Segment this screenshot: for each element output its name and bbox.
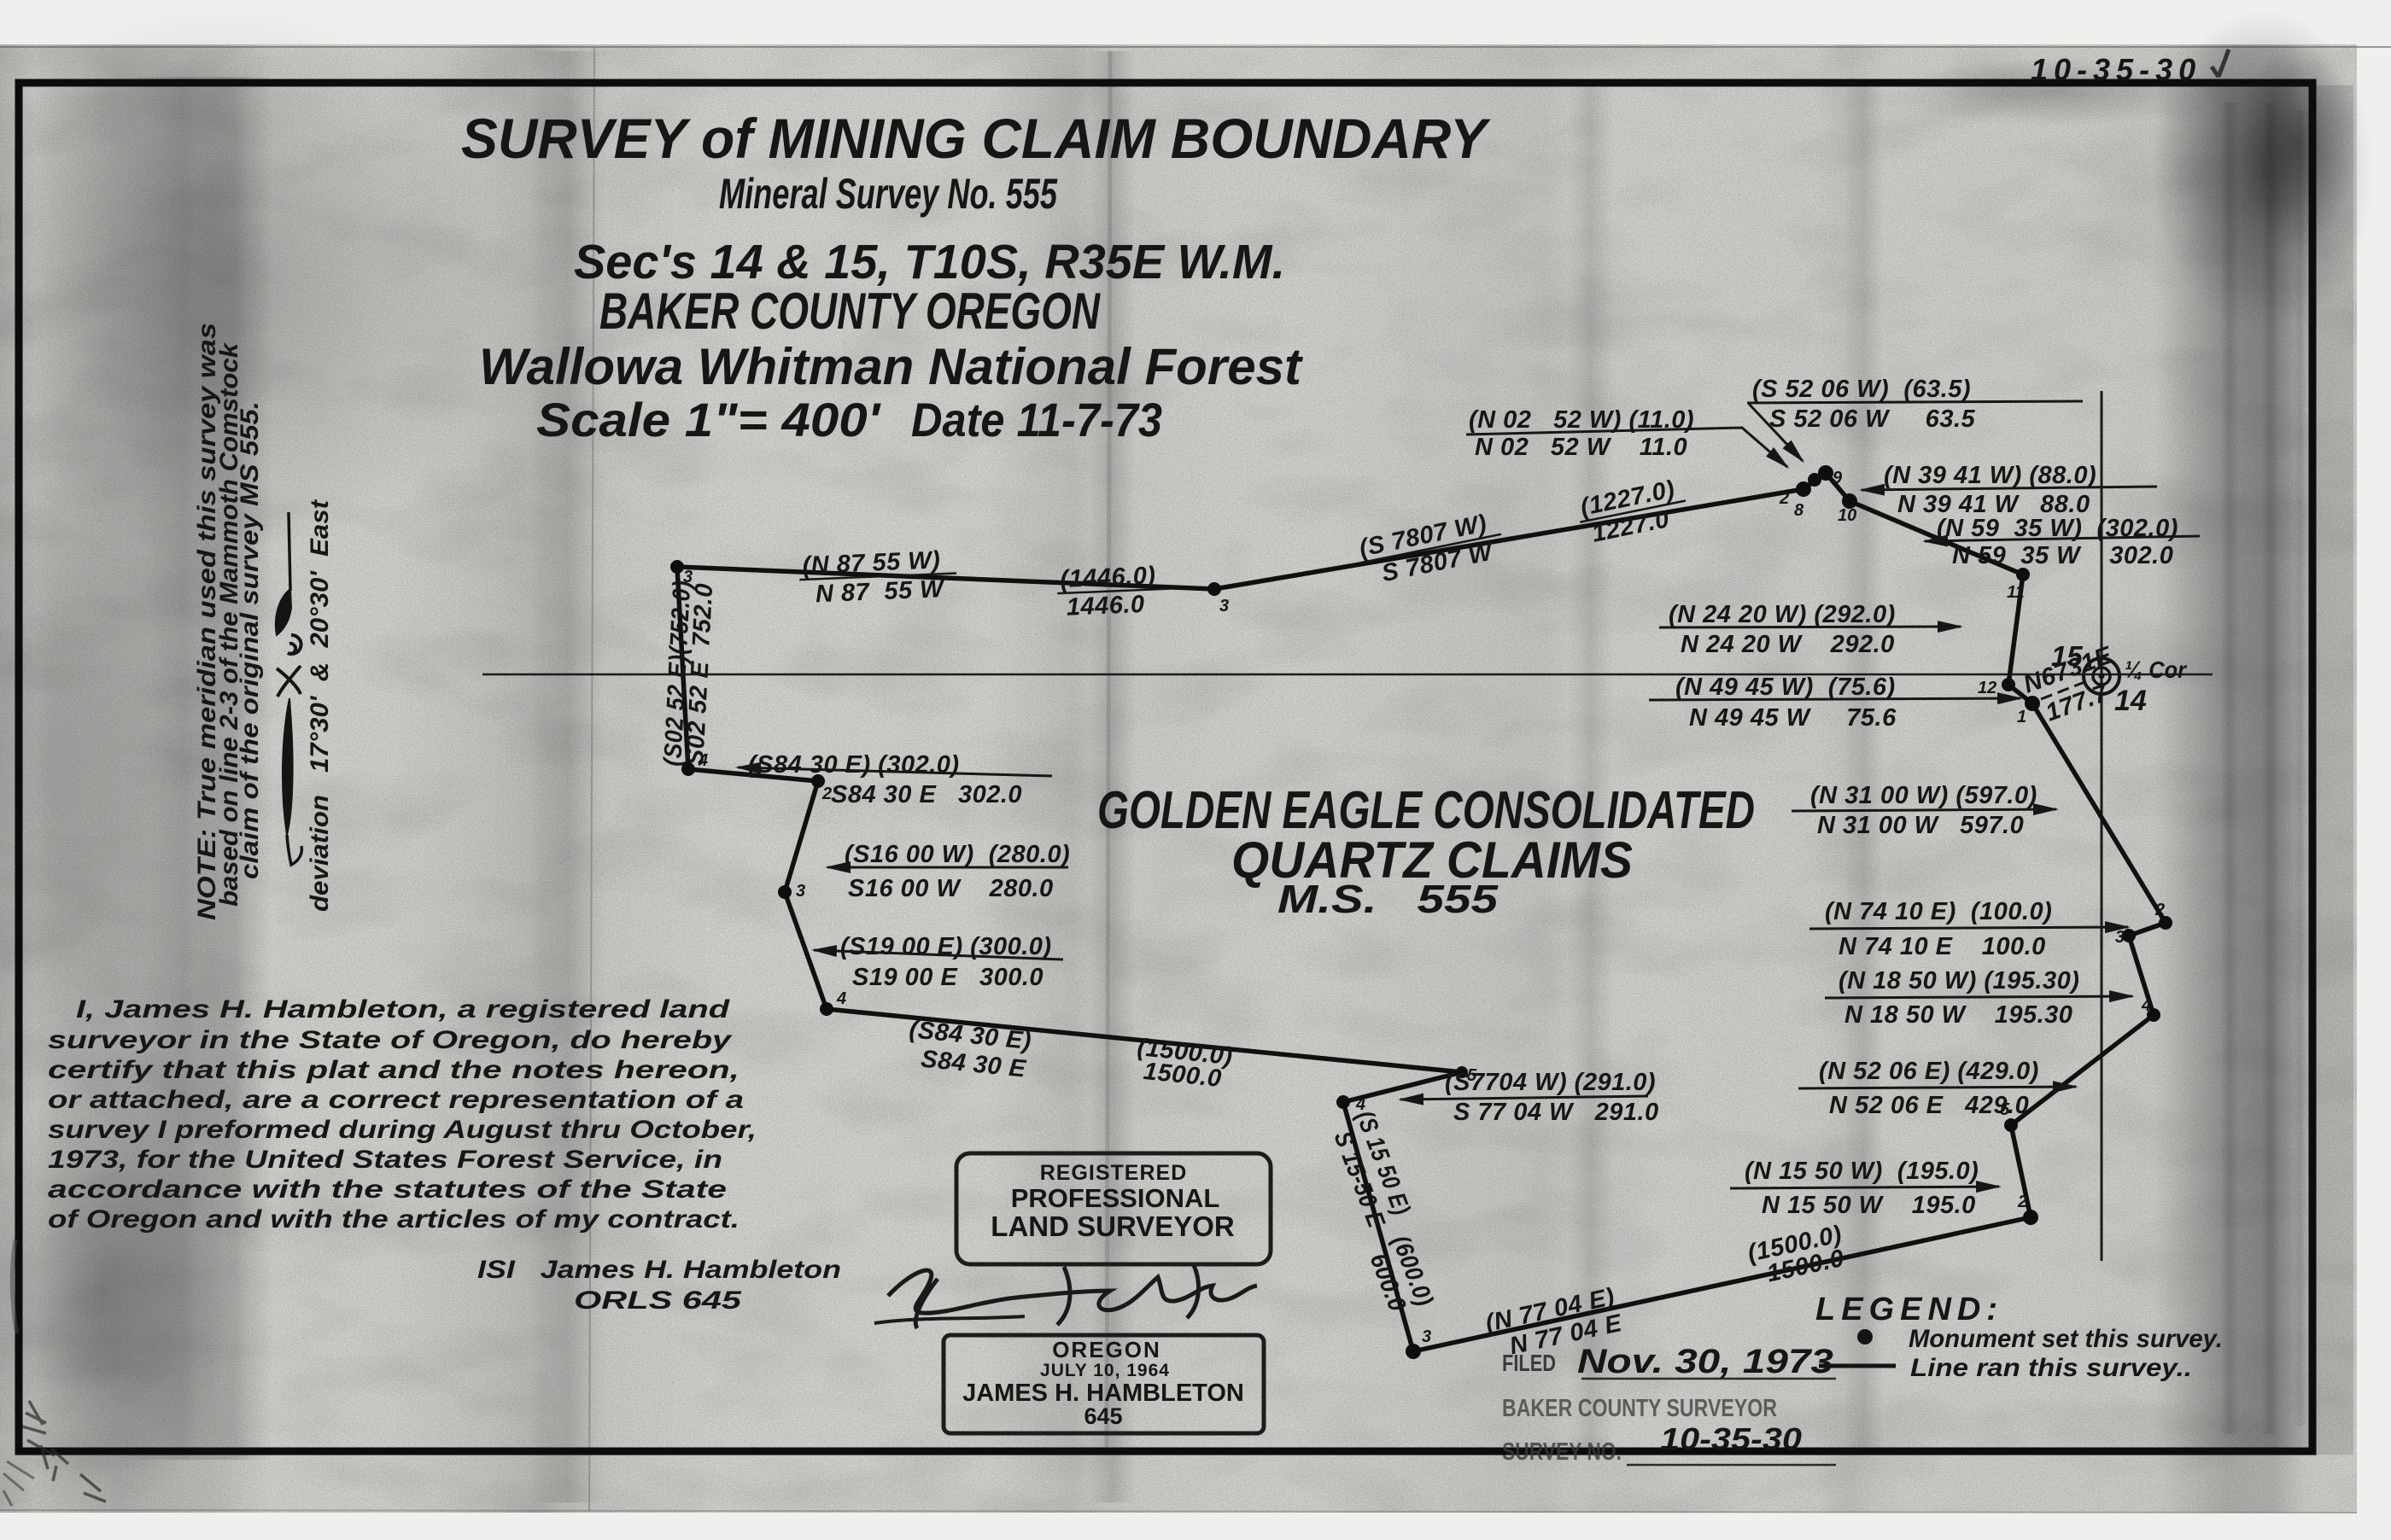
svg-text:deviation 17°30' & 20°30': deviation 17°30' & 20°30' East xyxy=(306,499,334,912)
svg-text:4: 4 xyxy=(2141,996,2151,1015)
svg-text:S16 00 W 280.0: S16 00 W 280.0 xyxy=(848,875,1054,902)
svg-text:N 52 06 E 429.0: N 52 06 E 429.0 xyxy=(1829,1092,2029,1119)
svg-text:(N 74 10 E) (100.0): (N 74 10 E) (100.0) xyxy=(1825,898,2052,925)
svg-text:claim of the original survey M: claim of the original survey MS 555. xyxy=(236,401,264,879)
svg-text:(N 39 41 W) (88.0): (N 39 41 W) (88.0) xyxy=(1884,462,2096,489)
svg-text:OREGON: OREGON xyxy=(1052,1337,1161,1362)
svg-text:S 77 04 W 291.0: S 77 04 W 291.0 xyxy=(1453,1099,1659,1126)
svg-text:8: 8 xyxy=(1794,501,1804,520)
svg-text:I, James H. Hambleton, a regis: I, James H. Hambleton, a registered land xyxy=(76,995,730,1024)
svg-text:ISI James H. Hambleton: ISI James H. Hambleton xyxy=(477,1256,841,1284)
svg-text:Monument set this survey.: Monument set this survey. xyxy=(1909,1325,2223,1353)
svg-text:(S16 00 W) (280.0): (S16 00 W) (280.0) xyxy=(845,841,1070,868)
svg-text:N 18 50 W 195.30: N 18 50 W 195.30 xyxy=(1844,1001,2072,1029)
svg-text:LEGEND:: LEGEND: xyxy=(1815,1292,2003,1327)
svg-text:N 24 20 W 292.0: N 24 20 W 292.0 xyxy=(1681,631,1895,658)
svg-text:SURVEY of MINING CLAIM BOUNDAR: SURVEY of MINING CLAIM BOUNDARY xyxy=(461,107,1491,170)
svg-text:Mineral Survey No. 555: Mineral Survey No. 555 xyxy=(719,170,1058,218)
svg-text:(1446.0): (1446.0) xyxy=(1060,562,1156,593)
svg-text:2: 2 xyxy=(1779,489,1789,508)
svg-text:10: 10 xyxy=(1838,506,1856,525)
svg-text:(S84 30 E) (302.0): (S84 30 E) (302.0) xyxy=(748,751,960,779)
svg-text:S 52 06 W 63.5: S 52 06 W 63.5 xyxy=(1769,405,1975,433)
svg-text:of Oregon and with the article: of Oregon and with the articles of my co… xyxy=(48,1205,740,1234)
svg-text:(S 52 06 W) (63.5): (S 52 06 W) (63.5) xyxy=(1752,376,1971,403)
svg-text:N 31 00 W 597.0: N 31 00 W 597.0 xyxy=(1817,812,2024,839)
svg-text:Line ran this survey..: Line ran this survey.. xyxy=(1910,1354,2192,1382)
svg-text:1446.0: 1446.0 xyxy=(1066,591,1145,621)
svg-text:N 59 35 W 302.0: N 59 35 W 302.0 xyxy=(1952,542,2173,569)
svg-text:Nov. 30, 1973: Nov. 30, 1973 xyxy=(1577,1343,1833,1380)
svg-text:3: 3 xyxy=(1422,1327,1431,1346)
svg-text:1973, for the United States Fo: 1973, for the United States Forest Servi… xyxy=(48,1146,722,1174)
svg-text:(N 52 06 E) (429.0): (N 52 06 E) (429.0) xyxy=(1819,1058,2039,1085)
svg-text:LAND SURVEYOR: LAND SURVEYOR xyxy=(991,1210,1235,1242)
svg-text:(N 49 45 W) (75.6): (N 49 45 W) (75.6) xyxy=(1675,674,1896,701)
svg-text:Scale 1"= 400': Scale 1"= 400' xyxy=(536,393,881,446)
svg-text:11: 11 xyxy=(2007,583,2025,602)
svg-text:(N 15 50 W) (195.0): (N 15 50 W) (195.0) xyxy=(1745,1158,1979,1185)
svg-text:or attached, are a correct rep: or attached, are a correct representatio… xyxy=(48,1086,744,1114)
svg-text:S19 00 E 300.0: S19 00 E 300.0 xyxy=(852,964,1044,991)
svg-text:S84 30 E 302.0: S84 30 E 302.0 xyxy=(831,781,1022,808)
svg-text:10-35-30: 10-35-30 xyxy=(1660,1421,1802,1456)
svg-text:2: 2 xyxy=(2154,901,2165,919)
svg-text:N 49 45 W 75.6: N 49 45 W 75.6 xyxy=(1689,704,1897,732)
svg-text:BAKER COUNTY SURVEYOR: BAKER COUNTY SURVEYOR xyxy=(1502,1395,1777,1422)
svg-text:3: 3 xyxy=(2115,928,2125,947)
svg-text:(S7704 W) (291.0): (S7704 W) (291.0) xyxy=(1445,1069,1656,1096)
svg-text:survey I preformed during Augu: survey I preformed during August thru Oc… xyxy=(48,1116,757,1144)
svg-text:certify that this plat and the: certify that this plat and the notes her… xyxy=(48,1056,740,1084)
svg-text:surveyor in the State of Orego: surveyor in the State of Oregon, do here… xyxy=(48,1026,733,1054)
svg-text:Wallowa Whitman National Fores: Wallowa Whitman National Forest xyxy=(479,338,1304,395)
svg-text:645: 645 xyxy=(1084,1403,1122,1429)
svg-text:BAKER COUNTY OREGON: BAKER COUNTY OREGON xyxy=(599,283,1101,340)
svg-text:(N 31 00 W) (597.0): (N 31 00 W) (597.0) xyxy=(1810,782,2037,809)
svg-text:accordance with the statutes o: accordance with the statutes of the Stat… xyxy=(48,1175,727,1204)
svg-text:10-35-30: 10-35-30 xyxy=(2031,52,2201,87)
svg-text:Date 11-7-73: Date 11-7-73 xyxy=(911,393,1162,446)
svg-text:12: 12 xyxy=(1978,679,1996,697)
svg-text:9: 9 xyxy=(1833,469,1843,487)
svg-text:(N 18 50 W) (195.30): (N 18 50 W) (195.30) xyxy=(1839,967,2079,995)
svg-text:1: 1 xyxy=(2017,708,2026,726)
svg-text:FILED: FILED xyxy=(1502,1350,1556,1376)
svg-text:4: 4 xyxy=(836,989,846,1008)
svg-text:Sec's 14 & 15, T10S, R35E W.M.: Sec's 14 & 15, T10S, R35E W.M. xyxy=(574,235,1285,289)
svg-text:3: 3 xyxy=(1219,597,1229,615)
svg-text:ORLS 645: ORLS 645 xyxy=(574,1286,743,1315)
svg-text:N 74 10 E 100.0: N 74 10 E 100.0 xyxy=(1839,933,2046,960)
svg-text:N 87 55 W: N 87 55 W xyxy=(815,575,945,608)
svg-text:14: 14 xyxy=(2114,685,2147,717)
svg-text:JULY 10, 1964: JULY 10, 1964 xyxy=(1040,1361,1170,1380)
svg-text:3: 3 xyxy=(796,882,805,901)
svg-text:N 02 52 W 11.0: N 02 52 W 11.0 xyxy=(1475,434,1687,461)
svg-text:M.S. 555: M.S. 555 xyxy=(1277,877,1499,921)
svg-text:REGISTERED: REGISTERED xyxy=(1040,1161,1188,1185)
svg-text:(N 24 20 W) (292.0): (N 24 20 W) (292.0) xyxy=(1669,601,1896,628)
svg-text:¼ Cor: ¼ Cor xyxy=(2125,656,2188,683)
svg-text:SURVEY NO.: SURVEY NO. xyxy=(1502,1438,1622,1466)
svg-text:N 15 50 W 195.0: N 15 50 W 195.0 xyxy=(1762,1192,1976,1219)
svg-text:2: 2 xyxy=(2017,1193,2027,1211)
svg-text:PROFESSIONAL: PROFESSIONAL xyxy=(1011,1183,1220,1213)
